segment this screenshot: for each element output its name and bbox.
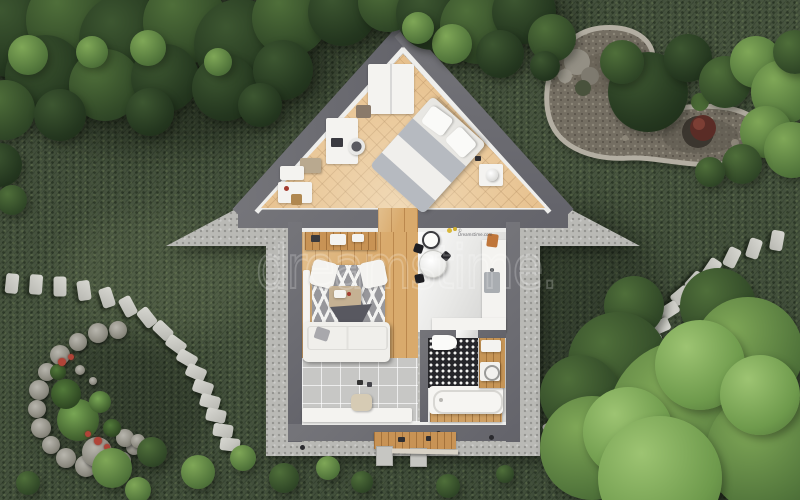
- deck-decor: [398, 437, 405, 442]
- deck-board: [392, 448, 458, 454]
- entrance: [0, 0, 800, 500]
- deck-step: [376, 446, 393, 466]
- deck-decor: [426, 436, 431, 441]
- mini-watermark: © Dreamstime.com: [458, 229, 484, 237]
- stock-photo-render: dreamstime. © Dreamstime.com: [0, 0, 800, 500]
